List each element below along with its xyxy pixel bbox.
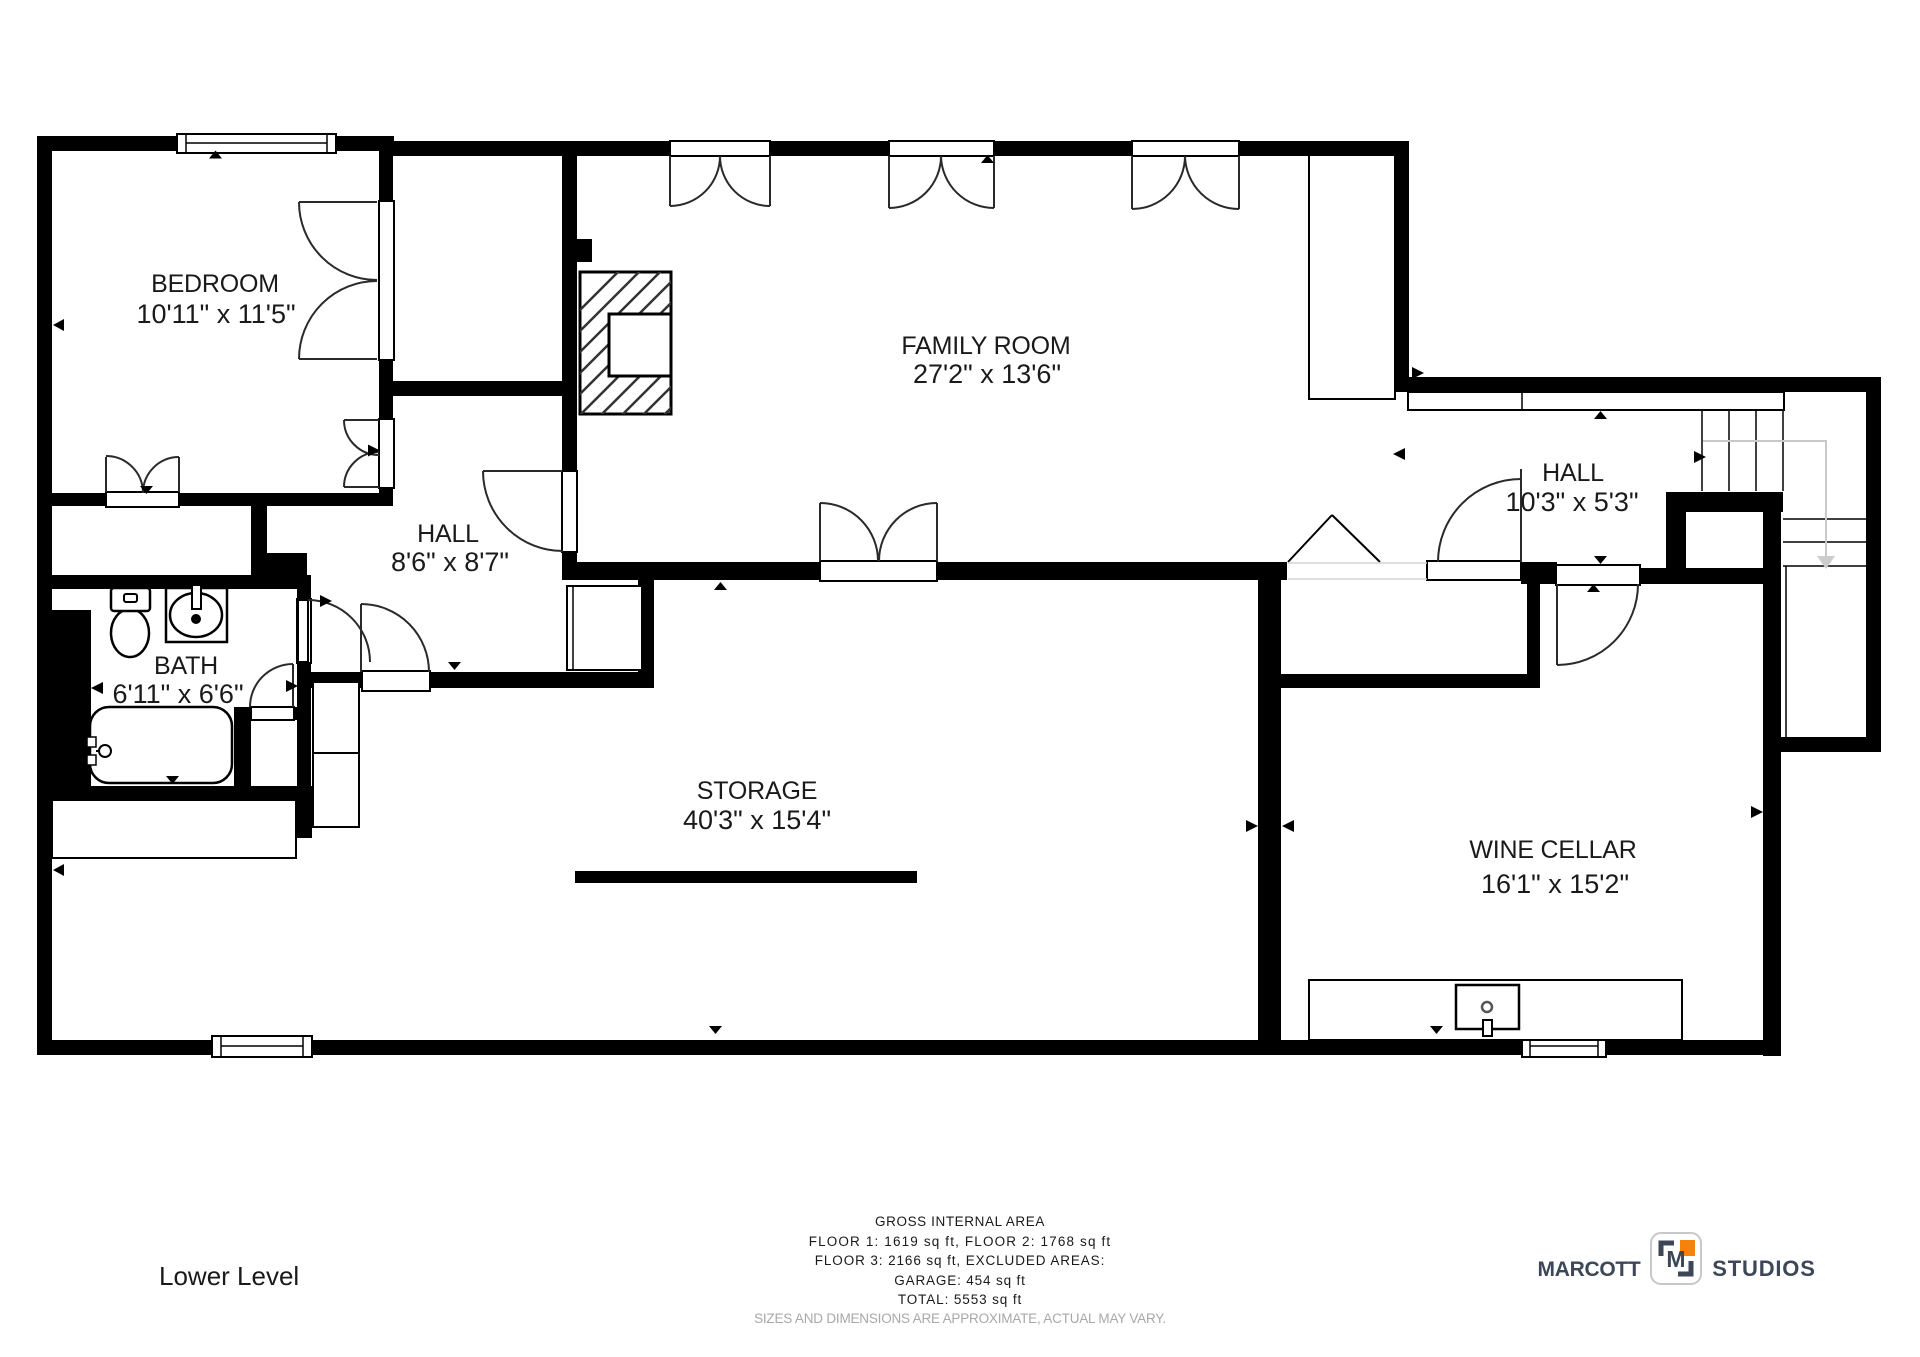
- svg-text:8'6" x 8'7": 8'6" x 8'7": [391, 547, 509, 577]
- svg-text:6'11" x 6'6": 6'11" x 6'6": [112, 679, 243, 709]
- svg-text:HALL: HALL: [417, 520, 479, 548]
- svg-text:MARCOTT: MARCOTT: [1538, 1258, 1641, 1281]
- svg-text:STORAGE: STORAGE: [697, 777, 817, 805]
- svg-text:GARAGE: 454 sq ft: GARAGE: 454 sq ft: [894, 1273, 1026, 1288]
- svg-text:FLOOR 3: 2166 sq ft, EXCLUDED: FLOOR 3: 2166 sq ft, EXCLUDED AREAS:: [815, 1253, 1106, 1268]
- svg-text:WINE CELLAR: WINE CELLAR: [1469, 836, 1636, 864]
- svg-text:10'11" x 11'5": 10'11" x 11'5": [136, 299, 295, 329]
- svg-text:27'2" x 13'6": 27'2" x 13'6": [913, 359, 1061, 389]
- svg-text:10'3" x 5'3": 10'3" x 5'3": [1505, 487, 1638, 517]
- svg-text:40'3" x 15'4": 40'3" x 15'4": [683, 805, 831, 835]
- svg-text:FLOOR 1: 1619 sq ft, FLOOR 2:: FLOOR 1: 1619 sq ft, FLOOR 2: 1768 sq ft: [809, 1234, 1112, 1249]
- svg-text:M: M: [1666, 1246, 1685, 1272]
- svg-text:STUDIOS: STUDIOS: [1712, 1256, 1815, 1281]
- svg-text:BEDROOM: BEDROOM: [151, 270, 279, 298]
- svg-text:BATH: BATH: [154, 652, 218, 680]
- svg-text:SIZES AND DIMENSIONS ARE APPRO: SIZES AND DIMENSIONS ARE APPROXIMATE, AC…: [754, 1311, 1166, 1326]
- svg-text:16'1" x 15'2": 16'1" x 15'2": [1481, 869, 1629, 899]
- svg-text:HALL: HALL: [1542, 459, 1604, 487]
- svg-text:FAMILY ROOM: FAMILY ROOM: [901, 332, 1070, 360]
- svg-text:Lower Level: Lower Level: [159, 1261, 299, 1291]
- svg-text:TOTAL: 5553 sq ft: TOTAL: 5553 sq ft: [898, 1292, 1022, 1307]
- svg-text:GROSS INTERNAL AREA: GROSS INTERNAL AREA: [875, 1214, 1045, 1229]
